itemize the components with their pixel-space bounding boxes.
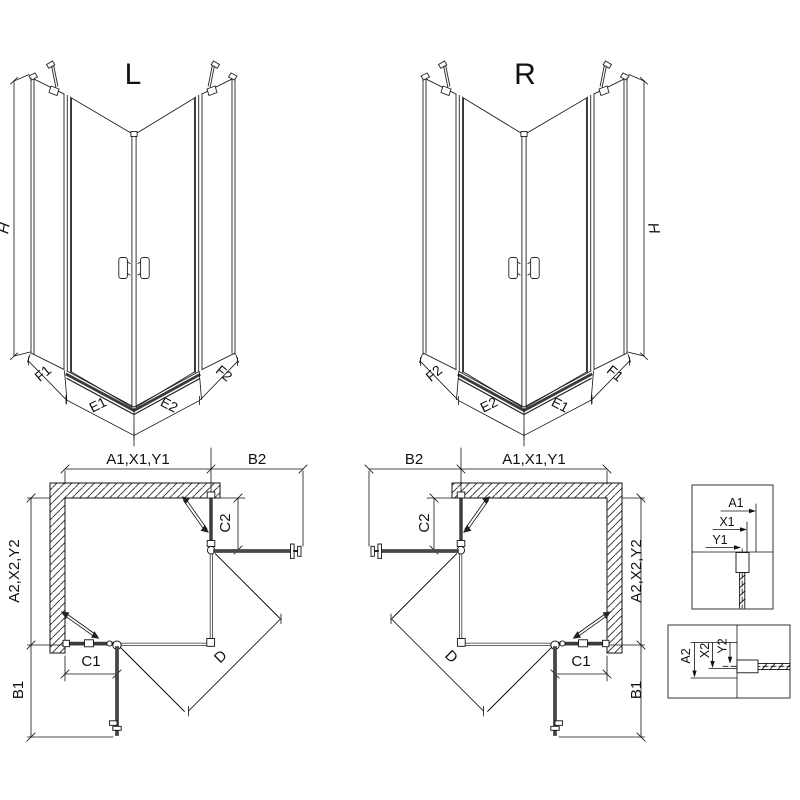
technical-drawing-canvas: L H F1 E1 E2 F2 R H F2 E2 E1 F1 A1,X1,Y1… bbox=[0, 0, 800, 800]
plan-left-dim-c1: C1 bbox=[81, 653, 100, 670]
iso-right-dim-f2: F2 bbox=[422, 362, 445, 385]
plan-right-wall bbox=[452, 483, 622, 653]
iso-right-dim-f1: F1 bbox=[604, 362, 627, 385]
plan-left-wall bbox=[50, 483, 220, 653]
iso-view-right: R H F2 E2 E1 F1 bbox=[420, 58, 663, 446]
detail-bottom-dim-y2: Y2 bbox=[716, 638, 730, 653]
iso-right-height-dim-label: H bbox=[644, 221, 663, 235]
plan-right-dim-c2: C2 bbox=[416, 513, 433, 532]
detail-top-dim-x1: X1 bbox=[719, 515, 734, 529]
iso-view-left: L H F1 E1 E2 F2 bbox=[0, 58, 239, 446]
plan-right-dim-a2x2y2: A2,X2,Y2 bbox=[628, 539, 645, 602]
plan-view-left: A1,X1,Y1 B2 A2,X2,Y2 B1 C1 C2 D bbox=[6, 448, 307, 741]
plan-view-right: B2 A1,X1,Y1 A2,X2,Y2 B1 C1 C2 D bbox=[365, 448, 645, 741]
technical-drawing-page: L H F1 E1 E2 F2 R H F2 E2 E1 F1 A1,X1,Y1… bbox=[0, 0, 800, 800]
iso-right-graphics bbox=[420, 61, 648, 446]
detail-box-top: A1 X1 Y1 bbox=[692, 485, 773, 609]
detail-bottom-dim-a2: A2 bbox=[679, 648, 693, 663]
detail-bottom-arrow-a2 bbox=[692, 671, 696, 678]
plan-right-dim-b2: B2 bbox=[405, 451, 423, 468]
plan-left-dim-b1: B1 bbox=[10, 681, 27, 699]
detail-top-arrow-y1 bbox=[734, 545, 741, 549]
plan-left-dim-a1x1y1: A1,X1,Y1 bbox=[106, 451, 169, 468]
plan-left-dim-c2: C2 bbox=[217, 513, 234, 532]
plan-right-dim-d: D bbox=[441, 647, 461, 667]
detail-bottom-wall-profile bbox=[737, 660, 758, 673]
iso-left-graphics bbox=[11, 61, 239, 446]
detail-top-dim-a1: A1 bbox=[728, 496, 743, 510]
detail-top-dim-y1: Y1 bbox=[712, 533, 727, 547]
plan-left-dim-d: D bbox=[211, 647, 231, 667]
detail-top-arrow-x1 bbox=[740, 527, 747, 531]
detail-top-wall-profile bbox=[736, 553, 749, 573]
iso-left-height-dim-label: H bbox=[0, 221, 14, 235]
plan-left-dim-a2x2y2: A2,X2,Y2 bbox=[6, 539, 23, 602]
plan-left-dim-b2: B2 bbox=[248, 451, 266, 468]
detail-bottom-arrow-y2 bbox=[728, 657, 732, 664]
detail-bottom-arrow-x2 bbox=[710, 661, 714, 668]
iso-left-view-label: L bbox=[125, 58, 142, 91]
detail-top-arrow-a1 bbox=[749, 509, 756, 513]
iso-left-dim-f1: F1 bbox=[31, 362, 54, 385]
plan-right-dim-a1x1y1: A1,X1,Y1 bbox=[502, 451, 565, 468]
detail-bottom-dim-x2: X2 bbox=[698, 643, 712, 658]
plan-right-dim-b1: B1 bbox=[628, 681, 645, 699]
plan-right-dim-c1: C1 bbox=[571, 653, 590, 670]
iso-right-view-label: R bbox=[514, 58, 536, 91]
iso-left-dim-f2: F2 bbox=[213, 362, 236, 385]
detail-box-bottom: A2 X2 Y2 bbox=[668, 625, 790, 698]
